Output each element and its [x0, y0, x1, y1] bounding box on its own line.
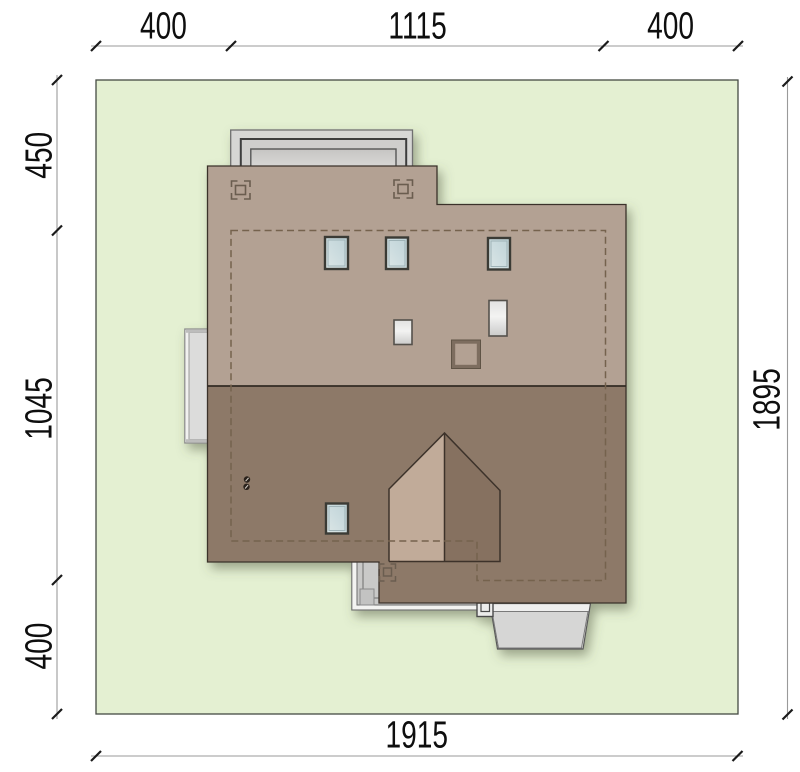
svg-text:1915: 1915	[386, 715, 449, 757]
svg-text:1115: 1115	[388, 6, 446, 48]
svg-text:400: 400	[140, 6, 187, 48]
svg-text:400: 400	[647, 6, 694, 48]
svg-text:400: 400	[19, 623, 61, 670]
svg-text:1895: 1895	[747, 368, 789, 431]
svg-text:1045: 1045	[19, 377, 61, 440]
svg-text:450: 450	[19, 132, 61, 179]
